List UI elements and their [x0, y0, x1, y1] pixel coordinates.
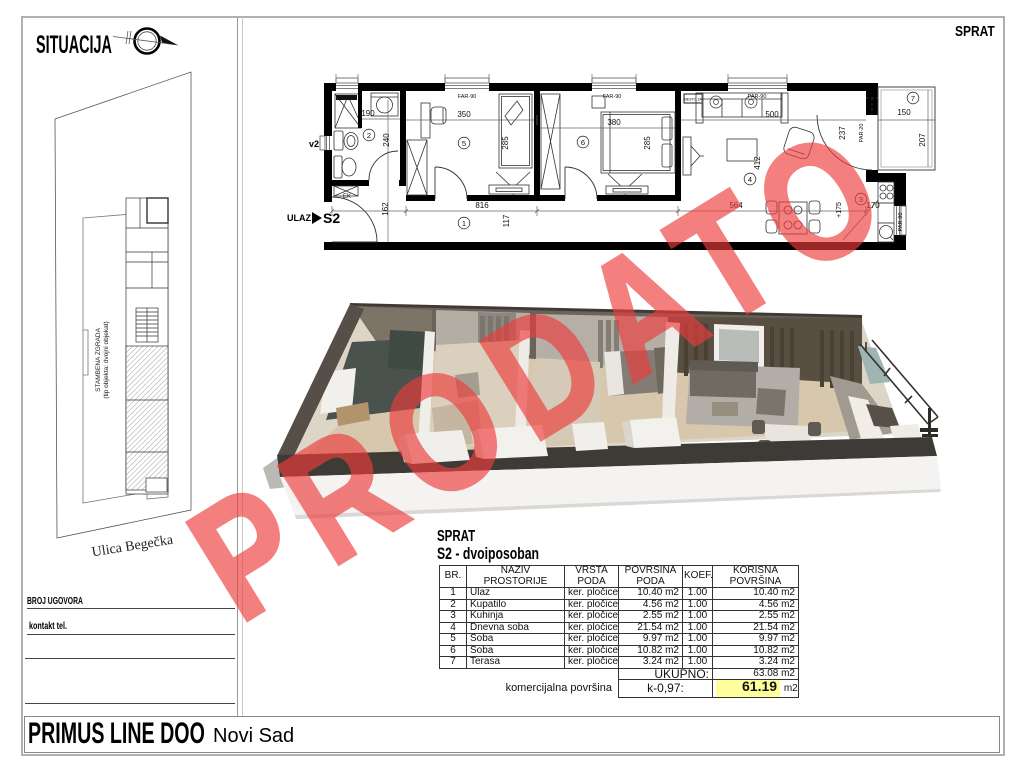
svg-text:564: 564 [729, 201, 743, 210]
svg-text:170: 170 [866, 201, 880, 210]
svg-text:380: 380 [607, 118, 621, 127]
svg-text:5: 5 [462, 139, 466, 148]
svg-text:7: 7 [911, 94, 915, 103]
svg-text:PAR-90: PAR-90 [898, 213, 904, 232]
svg-text:150: 150 [897, 108, 911, 117]
svg-text:500: 500 [765, 110, 779, 119]
svg-text:2: 2 [367, 131, 371, 140]
svg-text:412: 412 [753, 156, 762, 170]
svg-text:190: 190 [361, 109, 375, 118]
svg-text:3: 3 [859, 195, 863, 204]
svg-text:162: 162 [381, 202, 390, 216]
svg-text:117: 117 [502, 214, 511, 227]
svg-text:S2: S2 [323, 210, 340, 226]
svg-text:STAMBENA ZGRADA: STAMBENA ZGRADA [95, 327, 102, 391]
svg-text:PAR-20: PAR-20 [859, 124, 865, 143]
svg-text:v2: v2 [309, 139, 319, 149]
svg-text:(tip objekta: dvojni objekat): (tip objekta: dvojni objekat) [103, 321, 110, 398]
svg-text:1: 1 [462, 219, 466, 228]
svg-text:240: 240 [382, 133, 391, 147]
svg-text:285: 285 [501, 136, 510, 150]
svg-text:285: 285 [643, 136, 652, 150]
svg-text:FAR-90: FAR-90 [603, 94, 622, 100]
svg-text:207: 207 [918, 133, 927, 147]
svg-text:4: 4 [748, 175, 752, 184]
svg-text:6: 6 [581, 138, 585, 147]
svg-text:PAR-90: PAR-90 [748, 94, 767, 100]
svg-text:FAR-90: FAR-90 [458, 94, 477, 100]
svg-text:EK: EK [343, 194, 351, 200]
svg-text:350: 350 [457, 110, 471, 119]
svg-text:ULAZ: ULAZ [287, 213, 311, 223]
svg-text:Ulica Begečka: Ulica Begečka [91, 533, 175, 561]
svg-text:816: 816 [475, 201, 489, 210]
svg-text:+175: +175 [836, 202, 843, 218]
svg-text:237: 237 [838, 126, 847, 140]
